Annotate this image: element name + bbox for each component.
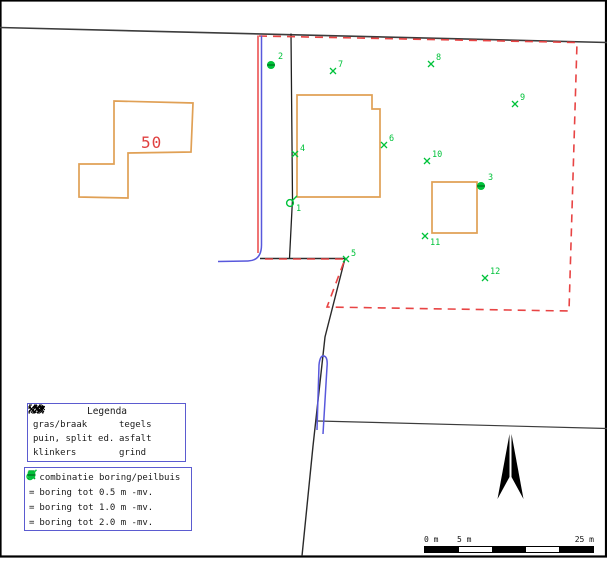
boring-number-label: 10 [432,150,442,160]
legend-label: tegels [119,420,152,430]
equals-sign: = [29,518,34,528]
legend-borings-box: = combinatie boring/peilbuis = boring to… [24,467,192,531]
scale-bar-labels: 0 m 5 m 25 m [424,535,594,544]
boring-number-label: 12 [490,267,500,277]
boring-number-label: 7 [338,60,343,70]
scale-bar-segments [424,546,594,553]
boring-number-label: 6 [389,134,394,144]
blue-curb-line [218,36,262,262]
north-arrow-icon [498,434,524,499]
legend-surface-box: Legenda gras/braak tegels [27,403,186,462]
boring-20-symbol-icon [25,468,39,481]
building-50 [79,101,193,198]
legend-title: Legenda [33,406,181,417]
boring-marker-6: 6 [381,134,394,148]
boring-number-label: 5 [351,249,356,259]
legend-surface-grid: gras/braak tegels puin, split ed. [33,418,181,460]
boring-marker-8: 8 [428,53,441,67]
legend-label: gras/braak [33,420,87,430]
legend-item-combi: = combinatie boring/peilbuis [29,470,187,485]
boring-number-label: 3 [488,173,493,183]
legend-label: combinatie boring/peilbuis [39,473,180,483]
boring-marker-5: 5 [343,249,356,262]
legend-item-boring-10: = boring tot 1.0 m -mv. [29,500,187,515]
legend-item-boring-05: = boring tot 0.5 m -mv. [29,485,187,500]
legend-label: grind [119,448,146,458]
scale-segment [492,547,526,552]
legend-item-tegels: tegels [119,420,183,430]
boring-markers-layer: 123456789101112 [267,52,525,281]
scale-label-5m: 5 m [457,535,471,544]
legend-label: boring tot 1.0 m -mv. [39,503,153,513]
boring-number-label: 1 [296,204,301,214]
boring-number-label: 4 [300,144,305,154]
site-plan-drawing: 50 123456789101112 Legenda gras/braak [0,0,607,561]
boring-marker-7: 7 [330,60,343,74]
house-number-label: 50 [141,133,162,152]
boring-number-label: 11 [430,238,440,248]
legend-label: asfalt [119,434,152,444]
boring-marker-3: 3 [477,173,493,190]
boring-number-label: 9 [520,93,525,103]
equals-sign: = [29,503,34,513]
scale-label-0m: 0 m [424,535,438,544]
scale-bar: 0 m 5 m 25 m [424,535,594,553]
south-boundary-line [318,421,607,429]
north-boundary-line [0,28,607,43]
legend-item-gras-braak: gras/braak [33,420,119,430]
legend-label: klinkers [33,448,76,458]
boring-marker-10: 10 [424,150,442,164]
boring-marker-9: 9 [512,93,525,107]
boring-marker-4: 4 [292,144,305,157]
legend-item-asfalt: asfalt [119,434,183,444]
legend-label: puin, split ed. [33,434,114,444]
boring-marker-12: 12 [482,267,500,281]
boring-marker-11: 11 [422,233,440,248]
building-central [297,95,380,197]
boring-number-label: 2 [278,52,283,62]
scale-segment [425,547,459,552]
scale-segment [459,547,493,552]
research-area-dashed-outline [259,36,577,311]
legend-label: boring tot 2.0 m -mv. [39,518,153,528]
center-parcel-line [290,34,293,259]
legend-label: boring tot 0.5 m -mv. [39,488,153,498]
building-small-east [432,182,477,233]
boring-number-label: 8 [436,53,441,63]
legend-item-klinkers: klinkers [33,448,119,458]
equals-sign: = [29,488,34,498]
west-parcel-line [302,259,345,557]
scale-label-25m: 25 m [575,535,594,544]
legend-item-grind: grind [119,448,183,458]
boring-marker-1: 1 [287,196,302,214]
legend-item-boring-20: = boring tot 2.0 m -mv. [29,515,187,530]
legend-item-puin-split: puin, split ed. [33,434,119,444]
scale-segment [526,547,560,552]
grind-icon [28,404,45,414]
boring-marker-2: 2 [267,52,283,69]
scale-segment [559,547,593,552]
